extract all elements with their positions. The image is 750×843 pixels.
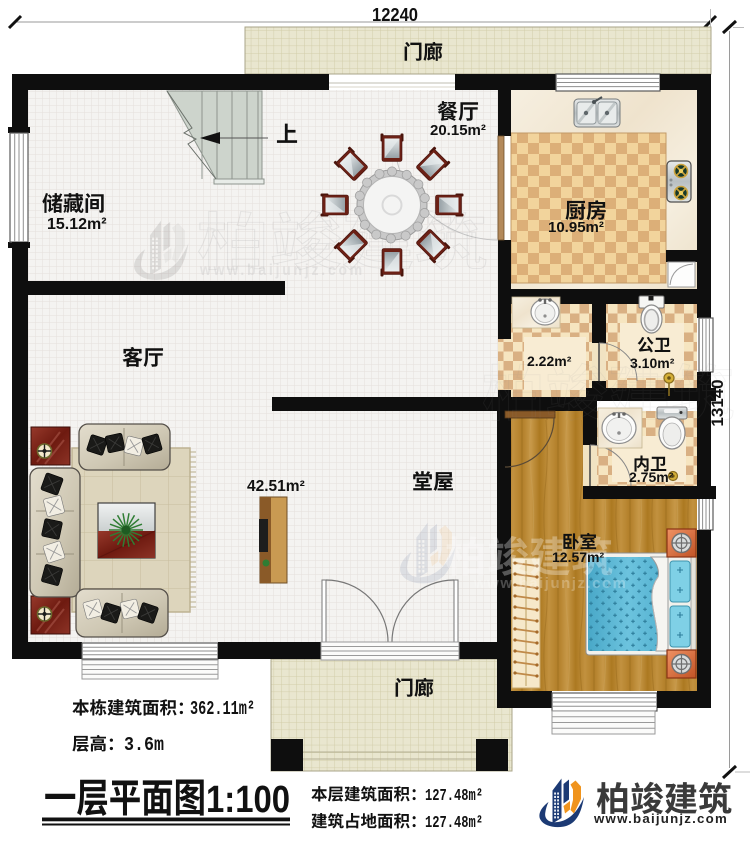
svg-text:15.12m²: 15.12m² [47,216,107,233]
svg-text:2.75m²: 2.75m² [629,469,674,485]
svg-text:10.95m²: 10.95m² [548,219,604,236]
svg-text:42.51m²: 42.51m² [247,478,305,495]
svg-text:2.22m²: 2.22m² [527,353,572,369]
svg-text:www.baijunjz.com: www.baijunjz.com [199,262,365,279]
svg-text:www.baijunjz.com: www.baijunjz.com [473,575,627,592]
svg-text:20.15m²: 20.15m² [430,122,486,139]
svg-text:3.10m²: 3.10m² [630,355,675,371]
svg-text:3.6m: 3.6m [124,734,164,756]
svg-text:127.48m²: 127.48m² [425,814,483,833]
svg-text:127.48m²: 127.48m² [425,787,483,806]
svg-text:www.baijunjz.com: www.baijunjz.com [593,811,728,826]
svg-text:1:100: 1:100 [206,779,290,821]
svg-text:362.11m²: 362.11m² [190,698,255,720]
svg-text:12.57m²: 12.57m² [552,549,604,565]
svg-text:12240: 12240 [372,5,418,25]
